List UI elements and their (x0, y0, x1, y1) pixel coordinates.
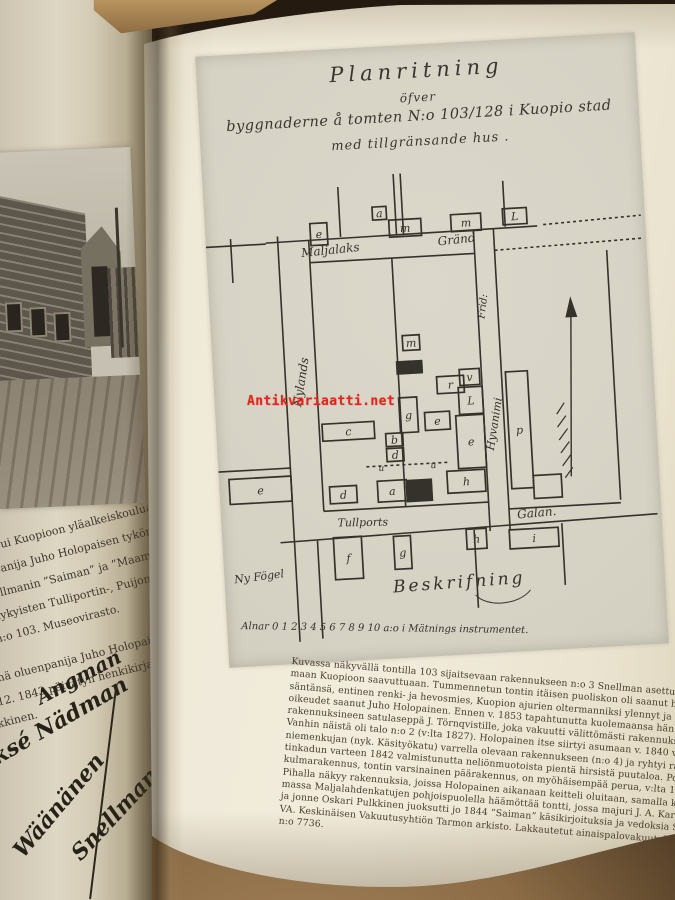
beskrifning-flourish (476, 590, 532, 605)
map-street-line (494, 238, 642, 250)
map-building-letter: d (340, 488, 348, 501)
map-street-line (338, 187, 341, 237)
photo-window (29, 307, 47, 338)
map-building-letter: e (257, 484, 265, 497)
map-street-line (543, 215, 641, 224)
map-building-letter: b (415, 484, 423, 497)
map-street-label: u (378, 464, 385, 474)
map-building-letter: a (376, 207, 383, 220)
signature-flourish (89, 689, 117, 900)
map-building-letter: L (510, 210, 519, 223)
map-building-letter: d (391, 449, 399, 462)
map-building-letter: h (463, 475, 471, 488)
map-street-label: u (430, 461, 437, 471)
map-street-line (607, 250, 621, 500)
map-street-line (473, 230, 490, 532)
map-street-label: Tullports (337, 515, 388, 529)
map-building-letter: i (532, 532, 536, 545)
photo-window (5, 302, 23, 333)
map-building (533, 474, 562, 499)
map-building-letter: f (345, 552, 353, 565)
map-building-letter: g (405, 409, 413, 422)
map-building-letter: m (400, 222, 411, 236)
map-street-line (392, 258, 406, 507)
north-arrow-head (564, 296, 577, 318)
map-building (410, 361, 423, 374)
map-street-line (218, 468, 290, 472)
plan-figure: Planritningöfverbyggnaderne å tomten N:o… (195, 32, 668, 668)
map-building-letter: a (389, 485, 396, 498)
map-street-line (562, 523, 565, 585)
photo-window (53, 312, 71, 343)
map-building-letter: e (468, 435, 476, 448)
right-page: Planritningöfverbyggnaderne å tomten N:o… (134, 4, 675, 896)
watermark-text: Antikvariaatti.net (247, 394, 395, 409)
map-building-letter: L (466, 394, 475, 407)
map-street-line (393, 174, 396, 235)
map-building-letter: r (447, 378, 454, 391)
north-arrow-shaft (562, 308, 580, 476)
page-bottom-shading (134, 811, 675, 896)
map-street-label: Frid: (476, 294, 490, 321)
map-building-letter: g (399, 546, 407, 559)
map-building-letter: e (315, 228, 323, 241)
map-building-letter: h (473, 533, 481, 546)
map-street-label: Beskrifning (391, 568, 526, 598)
photo-road (0, 375, 146, 509)
map-building-letter: m (406, 336, 417, 350)
map-street-label: Galan. (517, 504, 557, 522)
street-photograph (0, 147, 146, 509)
book-photo: pui Kuopioon yläalkeiskouluapanija Juho … (0, 0, 675, 900)
left-page: pui Kuopioon yläalkeiskouluapanija Juho … (0, 0, 152, 900)
map-building-letter: e (434, 415, 442, 428)
map-building-letter: m (460, 216, 471, 230)
map-street-line (277, 236, 300, 641)
map-street-label: Gränd (437, 230, 476, 248)
map-street-line (493, 228, 510, 530)
map-building-letter: p (516, 424, 524, 437)
map-street-label: Alnar 0 1 2 3 4 5 6 7 8 9 10 a:o i Mätni… (240, 621, 528, 636)
map-street-line (309, 241, 324, 512)
map-building (397, 361, 410, 374)
map-building-letter: b (391, 434, 399, 447)
map-building-letter: c (345, 425, 352, 438)
map-building-letter: v (466, 371, 474, 384)
map-street-label: Hyvanimi (484, 397, 505, 452)
map-street-line (206, 244, 266, 247)
photo-log-building (0, 193, 93, 403)
map-street-label: Ny Fögel (232, 567, 285, 586)
